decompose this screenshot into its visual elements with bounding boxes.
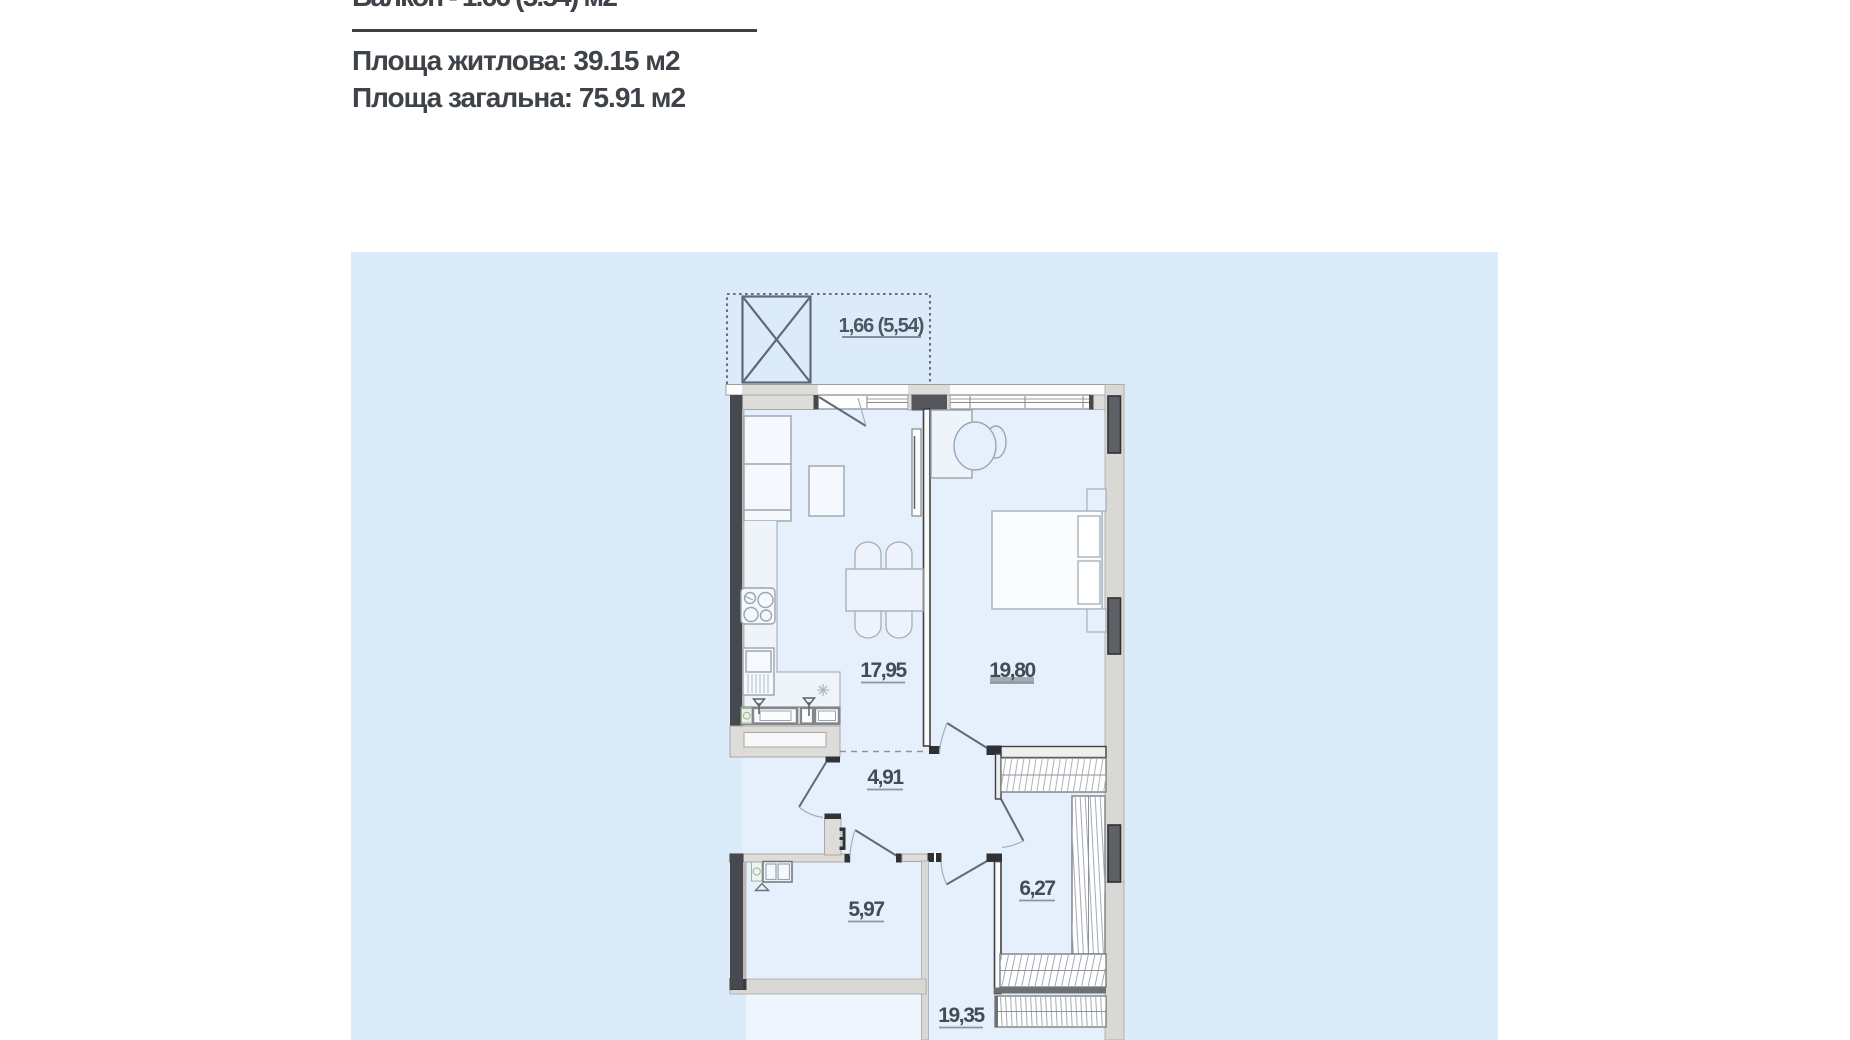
svg-text:1,66 (5,54): 1,66 (5,54) [839,315,924,337]
svg-text:19,80: 19,80 [989,659,1035,682]
svg-text:4,91: 4,91 [867,766,904,789]
svg-text:17,95: 17,95 [860,659,907,682]
svg-text:19,35: 19,35 [938,1004,985,1027]
svg-text:6,27: 6,27 [1019,877,1055,900]
svg-text:5,97: 5,97 [848,898,884,921]
